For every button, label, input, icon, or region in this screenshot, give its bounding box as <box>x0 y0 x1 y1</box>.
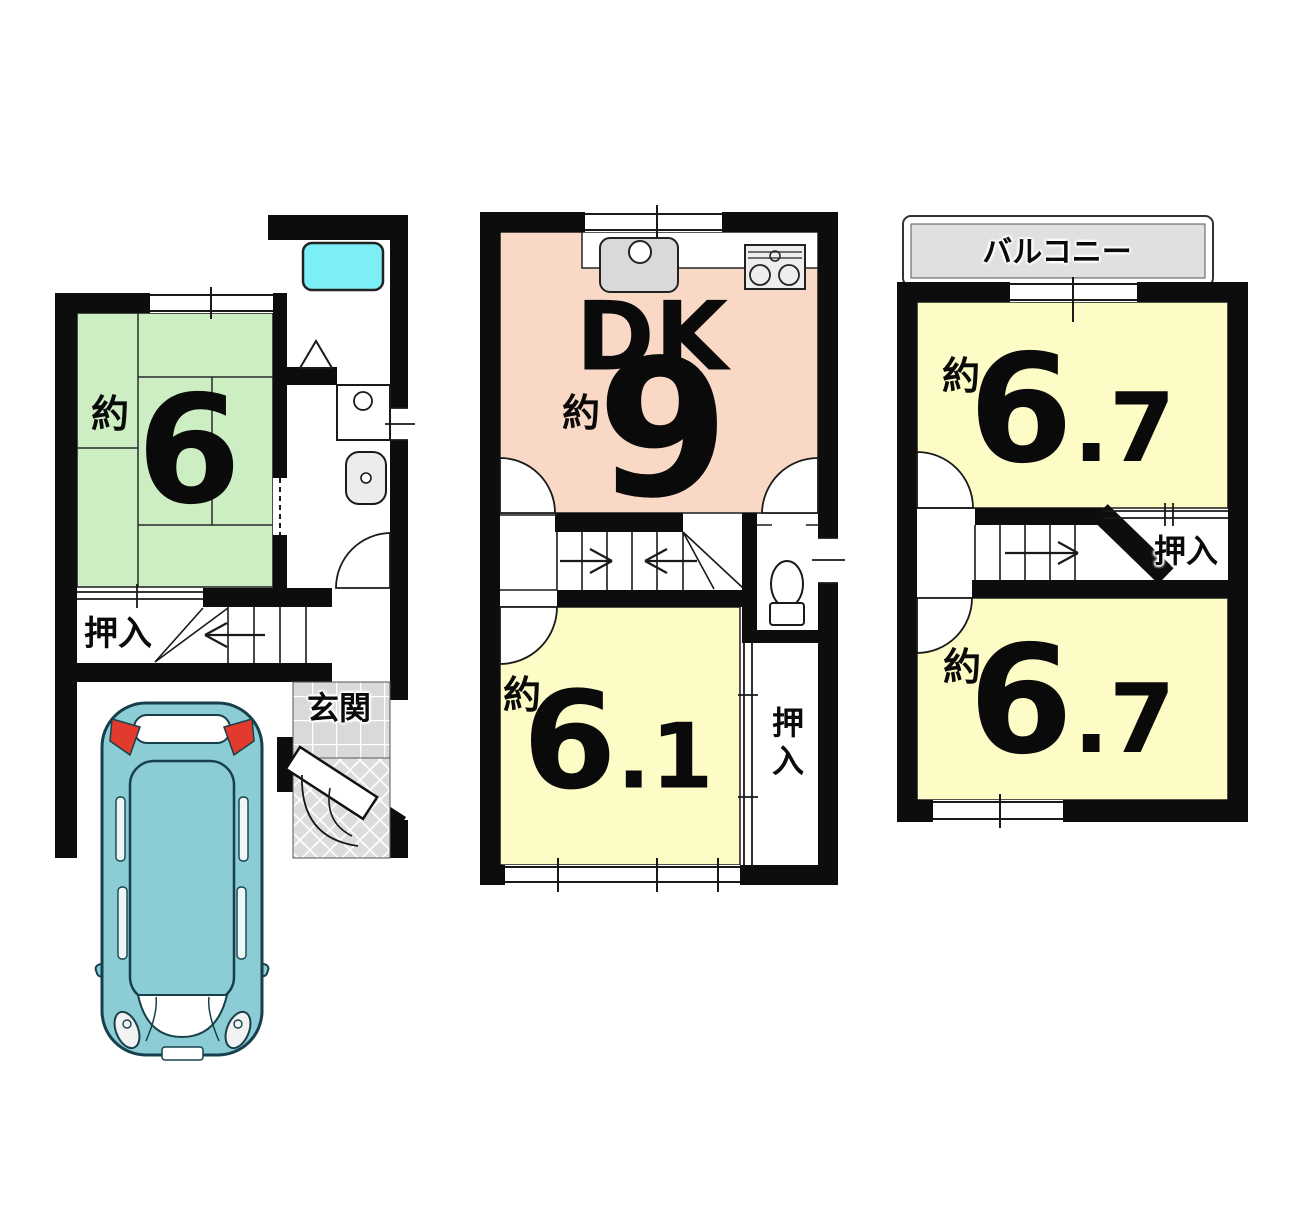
stair-arrow-down-icon <box>645 549 697 573</box>
room-lower-size-int: 6 <box>969 626 1073 776</box>
stove-icon <box>745 245 805 289</box>
bedroom-size-label: 6 .1 <box>523 674 714 809</box>
bathtub-icon <box>303 243 383 290</box>
entrance-label: 玄関 <box>307 692 371 724</box>
car-icon <box>95 703 270 1060</box>
stair-arrow-icon <box>205 623 265 647</box>
tatami-approx-label: 約 <box>91 395 129 433</box>
closet-label-3f: 押入 <box>1154 535 1218 567</box>
room-upper-size-dec: .7 <box>1073 382 1175 477</box>
door-arc-washroom <box>336 533 390 588</box>
closet-label-2f: 押入 <box>770 706 802 782</box>
shower-triangle-icon <box>300 341 332 368</box>
window-toilet <box>812 538 845 583</box>
room-upper-size-int: 6 <box>969 335 1073 485</box>
tatami-size-label: 6 <box>137 376 241 526</box>
bedroom-size-int: 6 <box>523 674 617 809</box>
washbasin-icon <box>337 385 390 440</box>
dk-approx-label: 約 <box>562 394 600 432</box>
bedroom-size-dec: .1 <box>617 713 714 803</box>
room-upper-size-label: 6 .7 <box>969 335 1176 485</box>
closet-label-1f: 押入 <box>84 617 152 651</box>
dk-size-label: 9 <box>597 335 729 525</box>
room-lower-size-dec: .7 <box>1073 673 1175 768</box>
stair-arrow-icon-3f <box>1005 542 1078 564</box>
toilet-icon <box>757 525 818 625</box>
vanity-sink-icon <box>346 452 386 504</box>
closet-sliding-door-2f <box>738 643 758 865</box>
floorplan-page: 約 6 押入 玄関 DK 約 9 約 6 .1 押入 バルコニー 約 6 .7 … <box>0 0 1300 1206</box>
stair-arrow-up-icon <box>560 549 612 573</box>
room-lower-size-label: 6 .7 <box>969 626 1176 776</box>
balcony-label: バルコニー <box>982 238 1131 268</box>
dashed-partition <box>273 478 287 535</box>
floorplan-canvas <box>0 0 1300 1206</box>
